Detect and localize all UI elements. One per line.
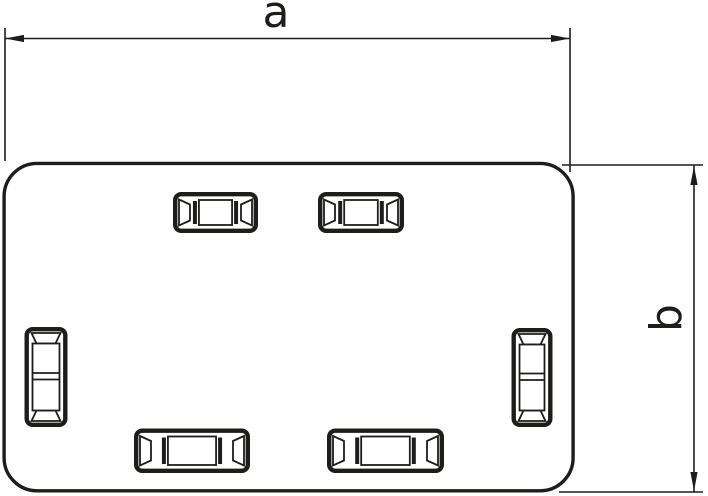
knockout-slot — [175, 194, 256, 231]
slot-floor — [344, 200, 378, 225]
slot-chamfer-left — [179, 200, 190, 226]
knockout-slot — [329, 431, 442, 471]
slot-floor — [199, 200, 232, 225]
slot-divider-left — [162, 438, 166, 465]
slot-chamfer-left — [333, 436, 344, 466]
slot-chamfer-bottom — [519, 411, 546, 422]
technical-drawing: a b — [0, 0, 708, 496]
dimension-a: a — [5, 0, 570, 172]
slot-divider-left — [193, 201, 197, 224]
dimension-b-arrow-top — [690, 166, 697, 185]
dimension-a-arrow-left — [5, 35, 24, 42]
slot-floor — [168, 437, 216, 466]
knockout-slot — [320, 194, 402, 231]
dimension-a-arrow-right — [551, 35, 570, 42]
knockout-slot — [136, 431, 248, 471]
slot-divider-right — [412, 438, 416, 465]
slot-chamfer-left — [324, 200, 335, 226]
slot-floor — [520, 345, 545, 411]
slot-chamfer-right — [233, 436, 244, 466]
slot-chamfer-top — [32, 333, 61, 344]
slot-floor — [361, 437, 410, 466]
slot-floor — [33, 344, 60, 411]
part-body — [4, 163, 573, 490]
body-outline — [4, 163, 573, 490]
knockout-slot — [27, 329, 66, 425]
slot-chamfer-right — [241, 200, 252, 226]
slot-divider-right — [380, 201, 384, 224]
slot-divider-left — [338, 201, 342, 224]
dimension-b-arrow-bottom — [690, 472, 697, 491]
dimension-a-label: a — [263, 0, 290, 38]
slot-divider-right — [234, 201, 238, 224]
slot-chamfer-bottom — [32, 411, 61, 422]
dimension-b: b — [559, 165, 703, 492]
drawing-svg: a b — [0, 0, 708, 496]
slot-divider-left — [355, 438, 359, 465]
dimension-b-label: b — [641, 304, 692, 332]
slot-divider-right — [218, 438, 222, 465]
slot-chamfer-right — [427, 436, 438, 466]
knockout-slot — [514, 330, 551, 425]
slot-chamfer-right — [387, 200, 398, 226]
slot-chamfer-top — [519, 334, 546, 345]
slot-chamfer-left — [140, 436, 151, 466]
